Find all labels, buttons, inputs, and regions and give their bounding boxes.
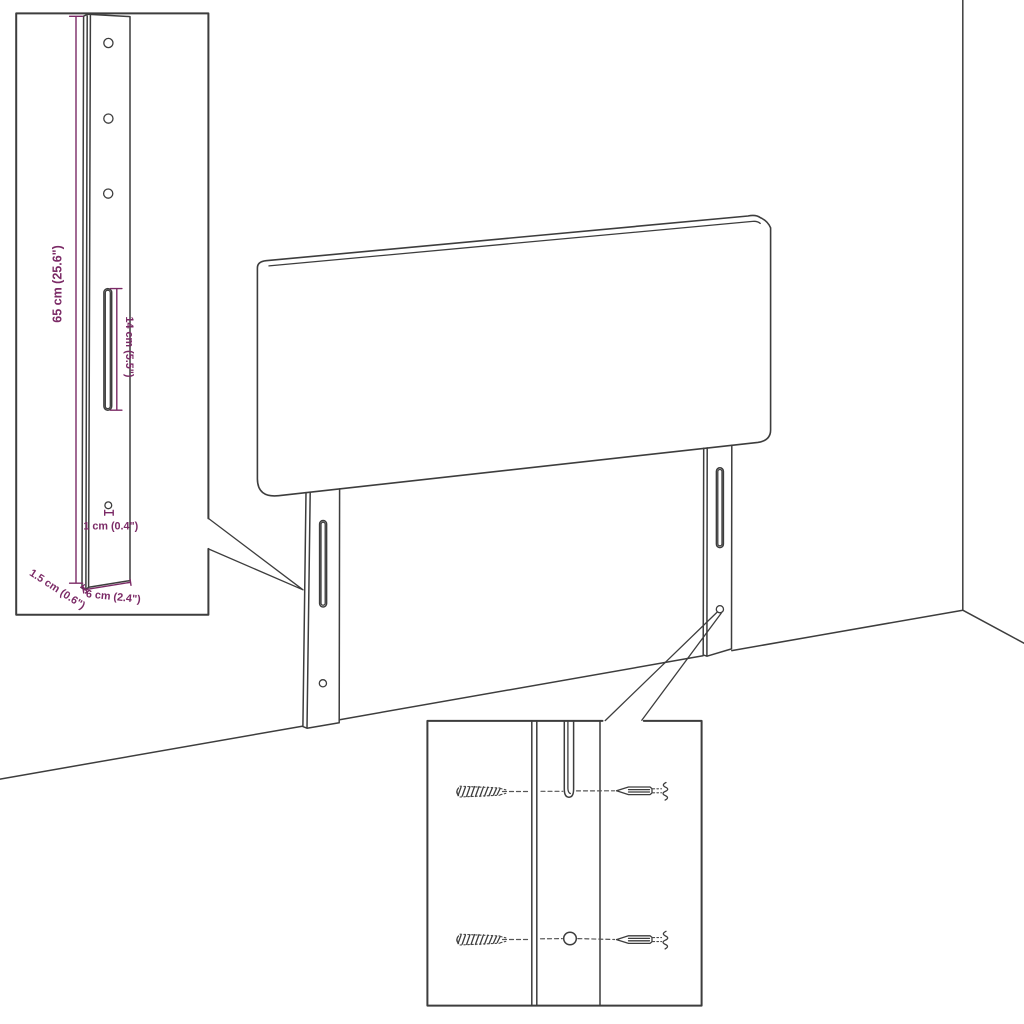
bracket-hole-1 <box>104 38 113 47</box>
bracket-hole-2 <box>104 114 113 123</box>
left-leg-hole <box>319 680 326 687</box>
bracket-slot-inner <box>105 290 110 408</box>
bracket-hole-3 <box>104 189 113 198</box>
product-assembly-diagram: 65 cm (25.6") 14 cm (5.5") 1 cm (0.4") 1… <box>0 0 1024 1024</box>
leader-top-row <box>503 791 615 792</box>
headboard-panel <box>257 215 770 495</box>
dimension-leg-width-label: 6 cm (2.4") <box>85 588 141 606</box>
dimension-slot-height: 14 cm (5.5") <box>110 289 135 411</box>
right-leg-hole <box>716 606 723 613</box>
dimension-hole-diameter-line <box>105 510 114 515</box>
headboard-outline <box>257 215 770 495</box>
bracket-small-hole <box>105 502 112 509</box>
dimension-leg-thickness-label: 1.5 cm (0.6") <box>27 567 87 612</box>
leg-strip-closeup <box>532 721 600 1006</box>
screw-left-bottom <box>457 934 507 945</box>
dimension-leg-thickness: 1.5 cm (0.6") <box>27 567 89 612</box>
screw-right-bottom-thread-squiggle <box>663 931 668 949</box>
callout-lines <box>208 518 721 720</box>
screw-left-top-threads <box>458 787 500 797</box>
dimension-leg-height-line <box>70 16 83 583</box>
screw-right-top-thread-squiggle <box>663 783 668 801</box>
dimension-slot-height-label: 14 cm (5.5") <box>123 317 135 378</box>
leg-strip-slot-inner <box>568 721 570 794</box>
headboard-top-seam <box>269 221 760 266</box>
right-leg <box>703 445 732 656</box>
screw-right-bottom-body <box>617 936 653 944</box>
screw-right-top-body <box>617 787 653 795</box>
leg-detail-inset: 65 cm (25.6") 14 cm (5.5") 1 cm (0.4") 1… <box>16 13 208 614</box>
screw-left-top <box>457 786 507 797</box>
floor-line-left <box>0 610 963 779</box>
dimension-hole-diameter-label: 1 cm (0.4") <box>83 521 138 533</box>
dimension-leg-height: 65 cm (25.6") <box>51 16 83 583</box>
floor-line-right <box>963 610 1024 643</box>
leg-strip-hole <box>564 932 577 945</box>
diagram-svg: 65 cm (25.6") 14 cm (5.5") 1 cm (0.4") 1… <box>0 0 1024 1024</box>
leader-bottom-row <box>503 939 615 940</box>
dimension-leg-height-label: 65 cm (25.6") <box>51 245 65 323</box>
right-leg-slot-inner <box>718 470 722 546</box>
screw-detail-inset <box>427 721 701 1006</box>
leg-bracket-drawing <box>82 14 130 590</box>
left-leg <box>303 489 340 728</box>
leg-detail-callout-lines <box>208 518 303 589</box>
screw-leader-lines <box>503 791 615 940</box>
screw-right-bottom <box>617 931 668 949</box>
screw-left-bottom-threads <box>458 935 500 945</box>
leg-strip-slot <box>564 721 573 797</box>
screw-right-top-tail <box>653 789 662 793</box>
left-leg-slot-inner <box>321 522 325 605</box>
leg-strip-edges <box>532 721 600 1006</box>
screw-right-top <box>617 783 668 801</box>
screw-right-bottom-tail <box>653 938 662 942</box>
room-lines <box>0 0 1024 779</box>
